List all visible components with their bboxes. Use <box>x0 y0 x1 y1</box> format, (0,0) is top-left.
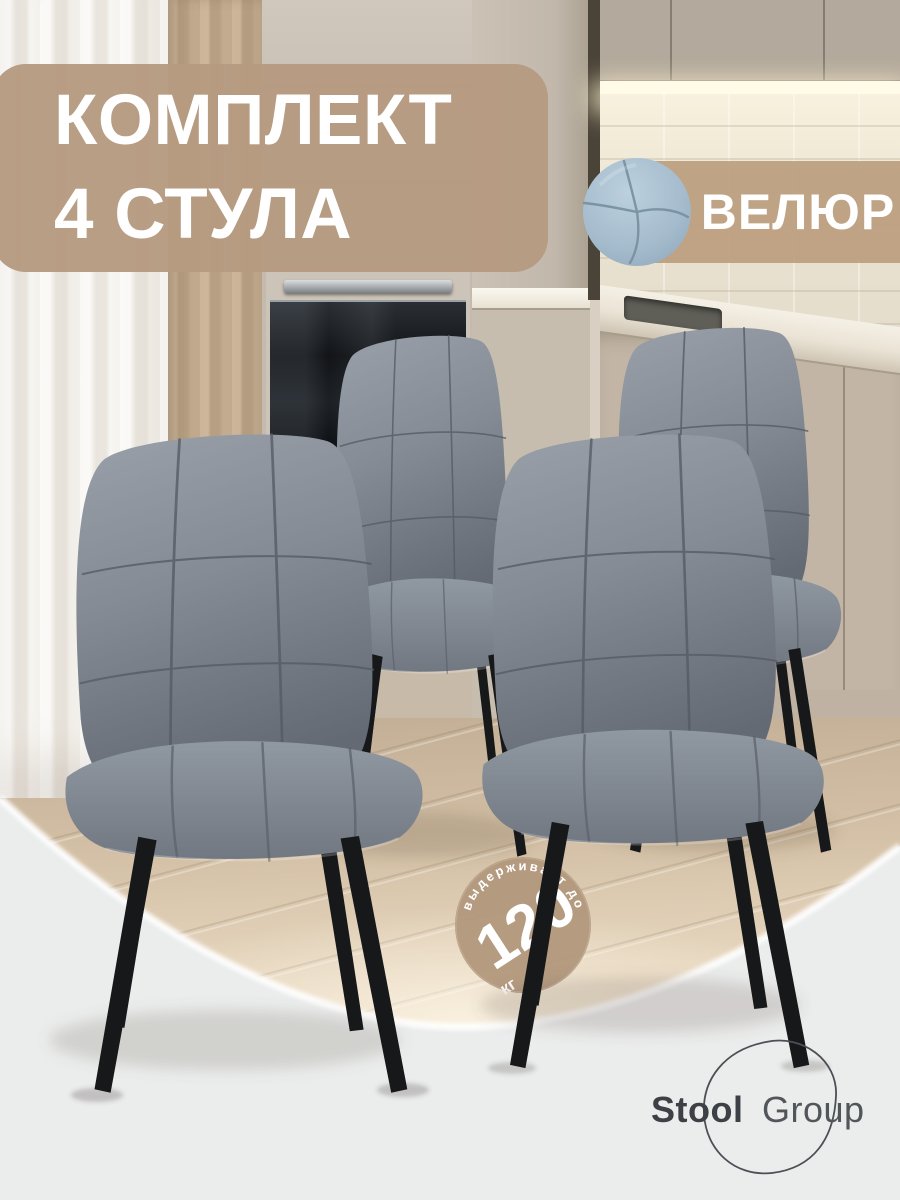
brand-bold: Stool <box>651 1089 743 1130</box>
svg-text:Stool Group: Stool Group <box>651 1089 865 1130</box>
brand-light: Group <box>762 1089 865 1130</box>
title-line-2: 4 СТУЛА <box>54 168 548 262</box>
product-card: выдерживает до 120 кг КОМПЛЕКТ 4 СТУЛА В… <box>0 0 900 1200</box>
fabric-swatch-icon <box>580 155 694 269</box>
brand-logo: Stool Group <box>630 1020 890 1190</box>
title-badge: КОМПЛЕКТ 4 СТУЛА <box>0 64 548 272</box>
title-line-1: КОМПЛЕКТ <box>54 74 548 168</box>
material-label: ВЕЛЮР <box>701 183 895 241</box>
